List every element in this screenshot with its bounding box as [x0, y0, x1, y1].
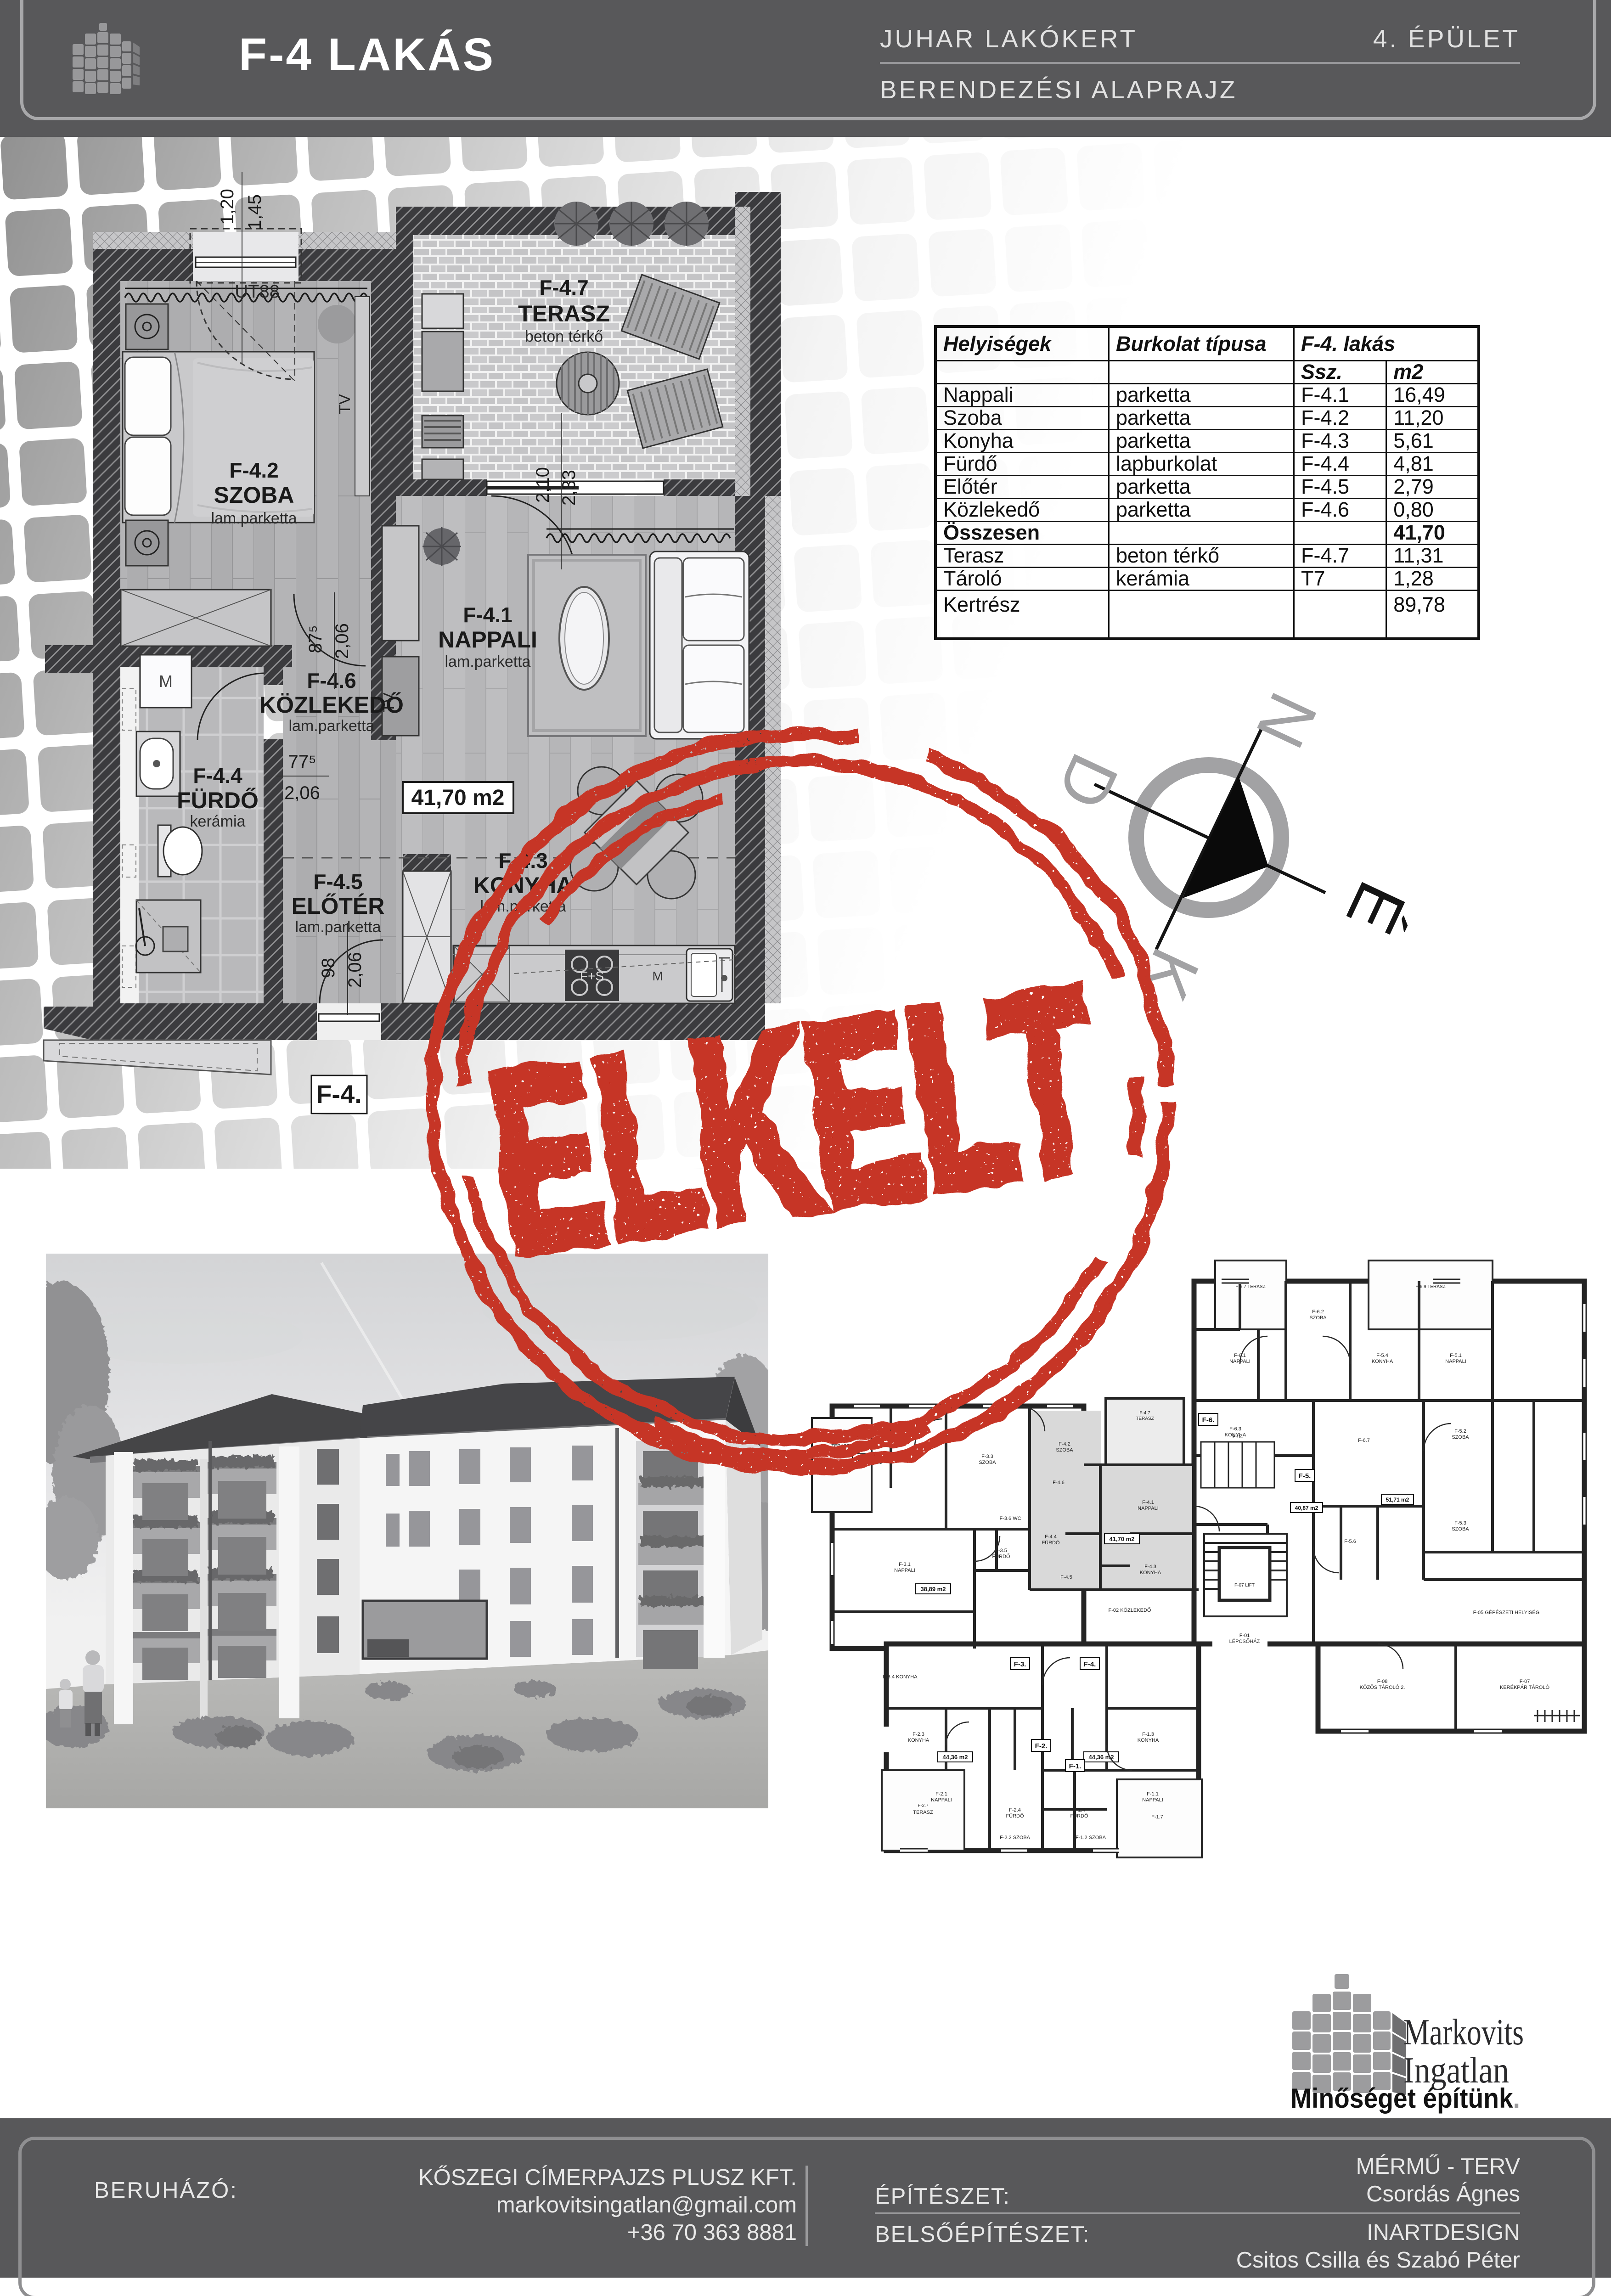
svg-text:lam.parketta: lam.parketta	[445, 653, 530, 670]
svg-text:F-4.2: F-4.2	[229, 458, 278, 482]
svg-text:TERASZ: TERASZ	[518, 301, 610, 326]
svg-text:ELŐTÉR: ELŐTÉR	[292, 893, 385, 919]
svg-text:Markovits: Markovits	[1403, 2012, 1524, 2053]
svg-text:98: 98	[318, 958, 338, 979]
svg-text:2,06: 2,06	[284, 783, 320, 803]
svg-text:1,45: 1,45	[245, 194, 265, 230]
svg-text:F-4.5: F-4.5	[313, 870, 362, 894]
svg-text:Minőséget építünk.: Minőséget építünk.	[1290, 2083, 1520, 2114]
svg-text:M: M	[159, 672, 173, 691]
svg-text:F-4.: F-4.	[316, 1080, 362, 1109]
svg-text:TV: TV	[336, 394, 354, 414]
svg-text:lam.parketta: lam.parketta	[295, 918, 381, 936]
svg-text:beton térkő: beton térkő	[525, 328, 603, 345]
svg-text:KÖZLEKEDŐ: KÖZLEKEDŐ	[259, 692, 404, 718]
svg-text:F-4.4: F-4.4	[193, 764, 242, 788]
svg-text:ELKELT: ELKELT	[473, 934, 1117, 1307]
svg-text:2,06: 2,06	[332, 623, 352, 659]
svg-text:kerámia: kerámia	[190, 813, 246, 830]
svg-text:2,10: 2,10	[533, 467, 553, 503]
svg-text:F-4.6: F-4.6	[307, 669, 356, 692]
svg-text:F-4.7: F-4.7	[539, 276, 588, 299]
svg-text:lam.parketta: lam.parketta	[211, 510, 297, 527]
svg-text:UT88: UT88	[235, 281, 280, 302]
svg-text:NAPPALI: NAPPALI	[438, 627, 537, 653]
svg-text:87⁵: 87⁵	[305, 625, 326, 653]
svg-text:SZOBA: SZOBA	[214, 482, 294, 508]
svg-text:F-4.1: F-4.1	[463, 603, 512, 627]
svg-text:1,20: 1,20	[217, 189, 237, 225]
svg-text:2,33: 2,33	[559, 470, 579, 506]
svg-text:lam.parketta: lam.parketta	[288, 717, 374, 735]
svg-text:77⁵: 77⁵	[288, 752, 316, 772]
svg-text:FÜRDŐ: FÜRDŐ	[177, 788, 259, 813]
